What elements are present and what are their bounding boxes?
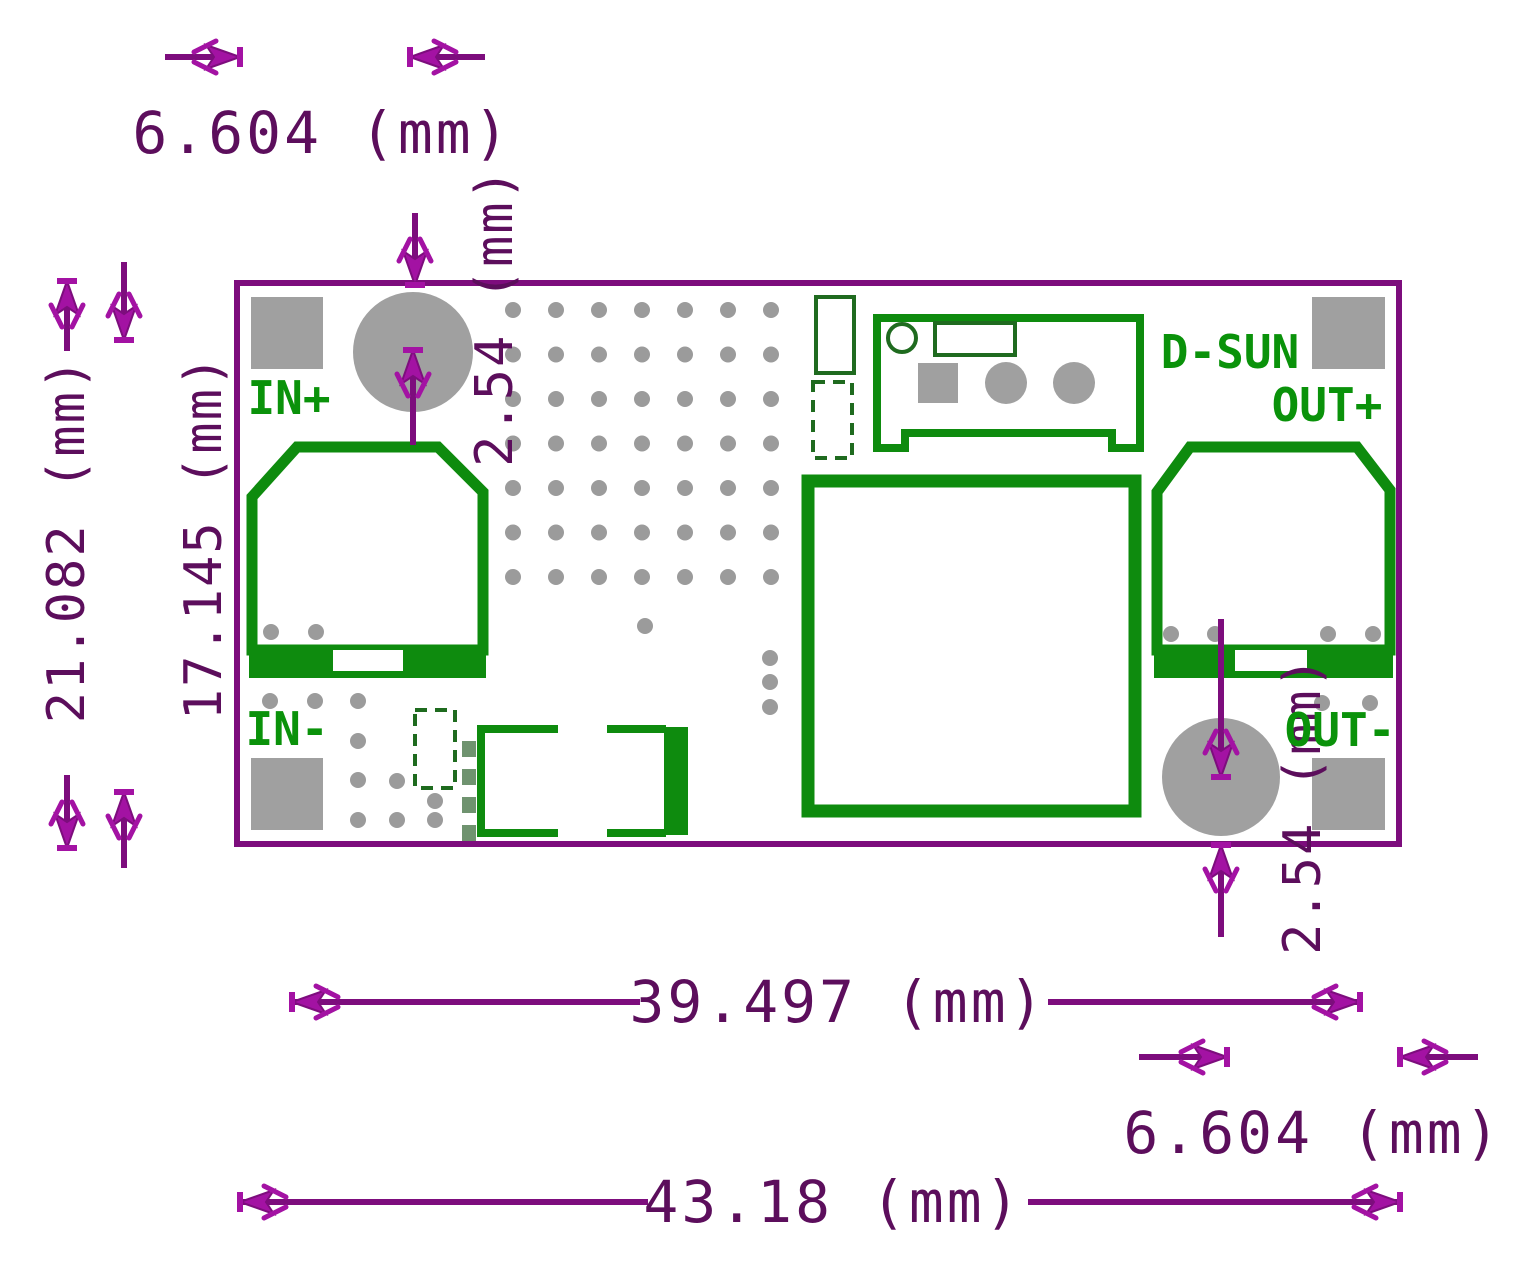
dimension-arrow [399,213,431,285]
silkscreen-capacitor-input [249,447,486,678]
dimension-arrow [108,792,140,868]
dim-label-hole-inset-top: 2.54 (mm) [465,167,525,467]
pad-out-plus [1312,297,1385,369]
pad-in-plus [251,297,323,369]
silkscreen-potentiometer [877,318,1140,448]
potentiometer-pad-square [918,363,958,403]
silkscreen-component-outline-1 [816,297,854,373]
dim-label-hole-offset-top: 6.604 (mm) [132,99,511,167]
dimension-arrow [108,262,140,340]
dimension-arrow [51,281,83,351]
silkscreen-inductor [808,481,1135,811]
label-out-plus: OUT+ [1272,378,1383,432]
dimension-arrow [1139,1041,1227,1073]
dim-label-pad-pitch-horizontal: 39.497 (mm) [629,968,1046,1036]
silkscreen-diode [462,727,688,841]
label-out-minus: OUT- [1285,703,1396,757]
dimension-arrow [1205,845,1237,937]
silkscreen-capacitor-output [1154,447,1393,678]
pad-in-minus [251,758,323,830]
label-brand-d-sun: D-SUN [1161,325,1299,379]
dimension-arrow [165,41,240,73]
dimension-arrow [410,41,485,73]
dim-label-pad-pitch-vertical: 17.145 (mm) [174,354,234,720]
potentiometer-pad-round-1 [985,362,1027,404]
label-in-minus: IN- [245,702,328,756]
dimension-arrow [51,775,83,848]
dim-label-hole-offset-bottom: 6.604 (mm) [1123,1099,1502,1167]
potentiometer-pad-round-2 [1053,362,1095,404]
silkscreen-component-outline-2 [813,382,852,458]
dimension-drawing-canvas: 6.604 (mm) 2.54 (mm) 21.082 (mm) 17.145 … [0,0,1536,1279]
dimension-arrow [240,1186,286,1218]
dim-label-hole-inset-bottom: 2.54 (mm) [1273,655,1333,955]
label-in-plus: IN+ [247,371,330,425]
dimension-arrow [1314,986,1360,1018]
dimension-arrow [1400,1041,1478,1073]
dimension-arrow [1354,1186,1400,1218]
silkscreen-component-outline-3 [415,710,455,788]
dim-label-board-height: 21.082 (mm) [37,357,97,723]
dimension-arrow [292,986,338,1018]
dim-label-board-width: 43.18 (mm) [643,1168,1022,1236]
